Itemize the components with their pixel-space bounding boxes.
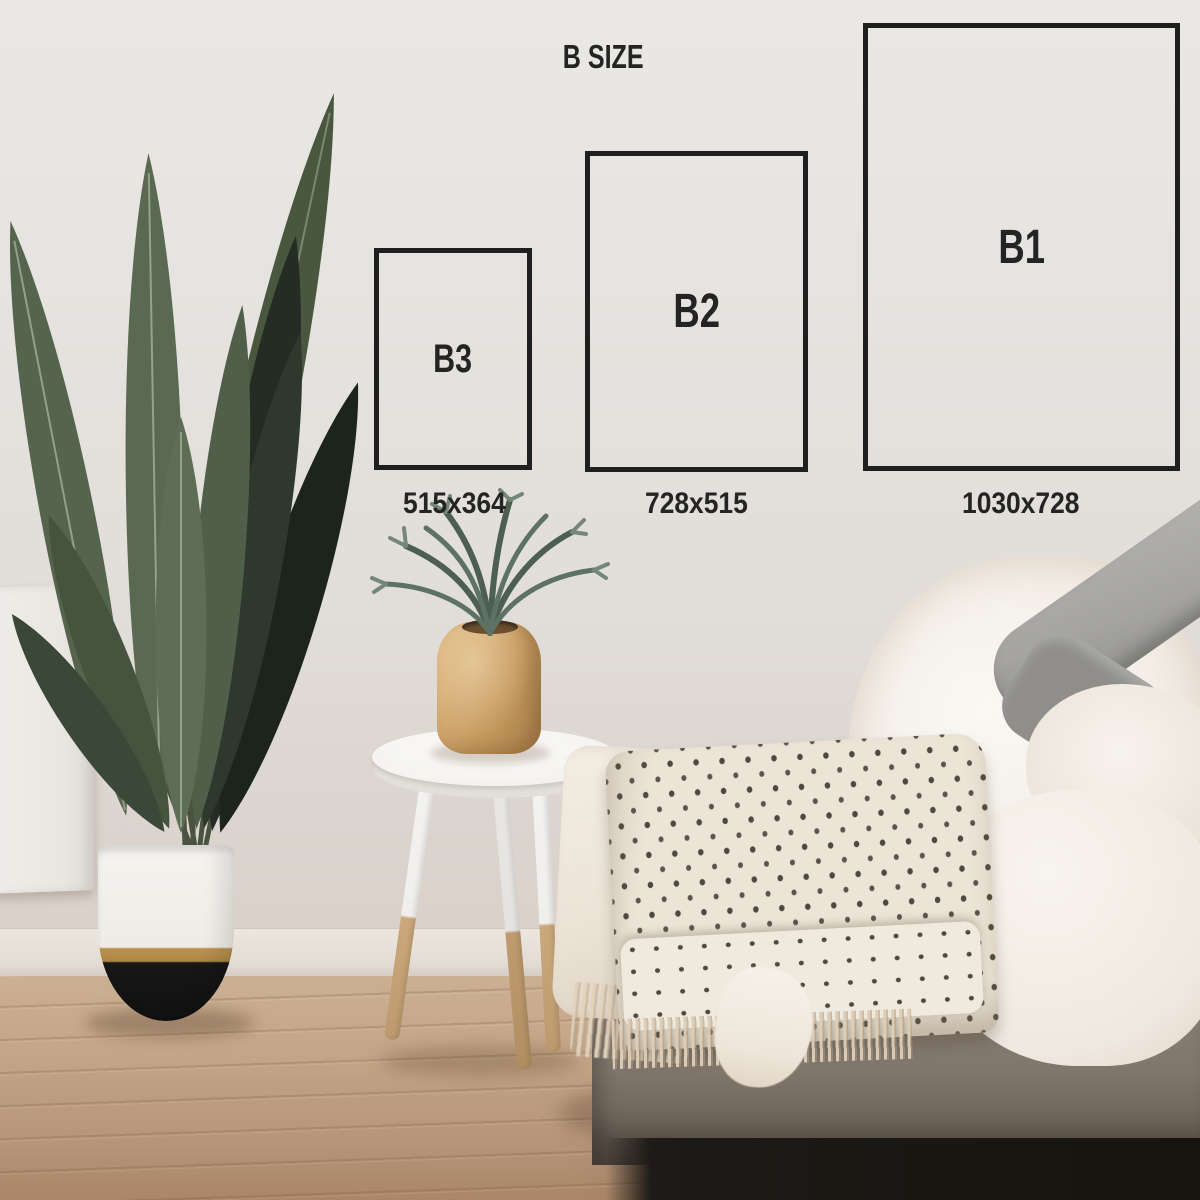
- size-frame-b2: B2: [585, 151, 808, 472]
- sofa-base-shadow: [606, 1138, 1200, 1200]
- plant-pot: [98, 845, 234, 1021]
- room-scene: B SIZE B3 B2 B1 515x364 728x515 1030x728: [0, 0, 1200, 1200]
- dimension-label-b3: 515x364: [354, 487, 554, 521]
- frame-label-b3: B3: [427, 337, 478, 382]
- frame-label-b2: B2: [666, 284, 727, 339]
- dimension-label-b1: 1030x728: [921, 487, 1121, 521]
- size-frame-b3: B3: [374, 248, 532, 470]
- diagram-title: B SIZE: [503, 38, 703, 76]
- frame-label-b1: B1: [991, 220, 1052, 275]
- size-frame-b1: B1: [863, 23, 1180, 471]
- dimension-label-b2: 728x515: [596, 487, 796, 521]
- diagram-title-text: B SIZE: [563, 38, 644, 76]
